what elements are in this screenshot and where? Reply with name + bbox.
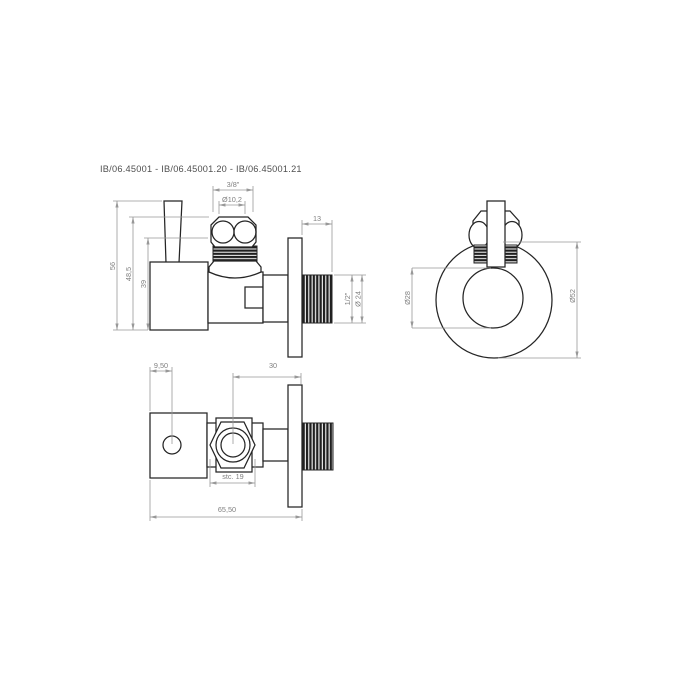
wall-flange-side [288,238,302,357]
nut-dome-transition [209,261,261,278]
drawing-page: IB/06.45001 - IB/06.45001.20 - IB/06.450… [0,0,685,685]
nut-lobe-left [469,222,489,249]
dim-label-axis-to-wall: 30 [269,361,277,370]
top-view [150,385,333,507]
nut-thread-front-left [474,245,487,263]
dim-olive-diameter: Ø10,2 [219,195,245,214]
valve-body-block-side [150,262,208,330]
dim-outlet-thread-length: 13 [302,214,332,272]
nut-neck-thread-side [213,246,257,262]
outlet-boss-side [245,287,263,308]
handle-lever-front [487,201,505,267]
outlet-neck-top [263,429,288,461]
dim-total-length: 65,50 [150,480,302,521]
dim-label-thread-top-height: 39 [139,280,148,288]
dim-label-rosette-diameter: Ø52 [568,289,577,303]
dim-outlet-thread-size-and-diameter: 1/2" Ø 24 [334,275,366,323]
dim-label-nut-thread-size: 3/8" [227,180,240,189]
outlet-neck-side [263,275,288,322]
body-inner-circle [463,268,523,328]
dim-label-wrench-size: stc. 19 [222,472,244,481]
dim-label-outlet-diameter: Ø 24 [354,291,363,307]
dim-label-olive-diameter: Ø10,2 [222,195,242,204]
front-view [436,201,552,358]
dim-label-total-height: 56 [108,262,117,270]
technical-drawing-canvas: IB/06.45001 - IB/06.45001.20 - IB/06.450… [0,0,685,685]
drawing-title: IB/06.45001 - IB/06.45001.20 - IB/06.450… [100,164,302,174]
wall-flange-top [288,385,302,507]
dim-label-outlet-thread-size: 1/2" [343,292,352,305]
dim-label-inner-diameter: Ø28 [403,291,412,305]
handle-lever-side [164,201,182,263]
dim-label-total-length: 65,50 [218,505,236,514]
nut-thread-front-right [504,245,517,263]
outlet-thread-top [303,423,333,470]
dim-label-hole-offset: 9,50 [154,361,168,370]
dim-label-nut-top-height: 48,5 [124,267,133,281]
valve-body-block-top [150,413,207,478]
outlet-thread-side [303,275,332,323]
dim-label-outlet-thread-length: 13 [313,214,321,223]
